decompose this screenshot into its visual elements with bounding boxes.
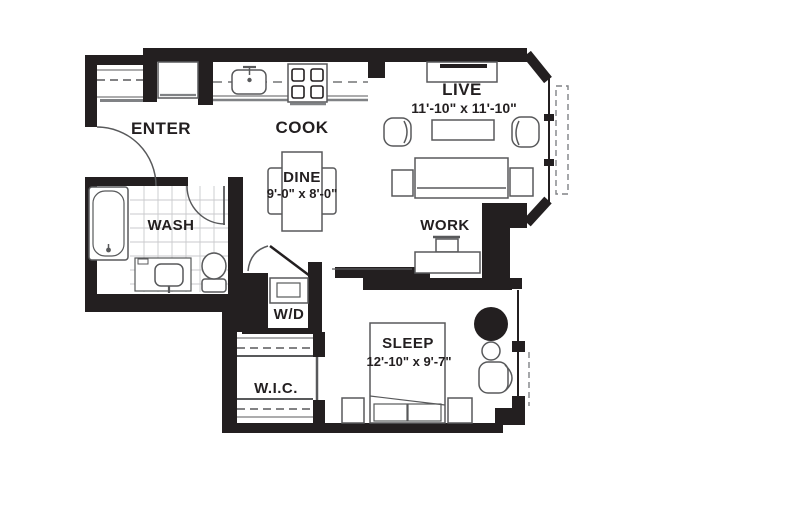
bathtub (89, 187, 128, 260)
side-table-right (510, 168, 533, 196)
toilet (202, 253, 226, 292)
kitchen (158, 62, 368, 104)
kitchen-sink (232, 67, 266, 94)
desk-chair (433, 237, 460, 252)
dine-label: DINE (283, 169, 321, 186)
live-bay-window (544, 78, 568, 202)
stool (482, 342, 500, 360)
washer-dryer (270, 278, 308, 303)
wd-label: W/D (274, 306, 305, 323)
sleep-label: SLEEP (382, 335, 434, 352)
live-dims: 11'-10" x 11'-10" (411, 100, 517, 116)
armchair-left (384, 118, 411, 146)
bedroom-chair (479, 362, 512, 393)
desk (415, 252, 480, 273)
nightstand-right (448, 398, 472, 423)
armchair-right (512, 117, 539, 147)
side-table-left (392, 170, 413, 196)
wd-door-arc (248, 246, 268, 271)
sleep-dims: 12'-10" x 9'-7" (366, 354, 451, 369)
live-label: LIVE (442, 80, 482, 99)
tv-console (427, 62, 497, 82)
wic-label: W.I.C. (254, 380, 298, 397)
refrigerator (158, 62, 198, 98)
stove (288, 64, 327, 104)
round-table (474, 307, 508, 341)
wash-label: WASH (148, 217, 195, 234)
entry-closet (97, 70, 143, 102)
work-label: WORK (420, 217, 470, 234)
sofa (415, 158, 508, 198)
dine-dims: 9'-0" x 8'-0" (267, 186, 338, 201)
enter-label: ENTER (131, 119, 191, 138)
wd-door-panel (270, 246, 310, 276)
coffee-table (432, 120, 494, 140)
vanity-sink (135, 258, 191, 293)
floorplan-svg: ENTER COOK LIVE 11'-10" x 11'-10" DINE 9… (0, 0, 800, 519)
bathroom-fixtures (89, 187, 226, 293)
nightstand-left (342, 398, 364, 423)
cook-label: COOK (276, 118, 329, 137)
wic-shelving (237, 338, 313, 417)
live-balcony-outline (556, 86, 568, 194)
floorplan-canvas: ENTER COOK LIVE 11'-10" x 11'-10" DINE 9… (0, 0, 800, 519)
